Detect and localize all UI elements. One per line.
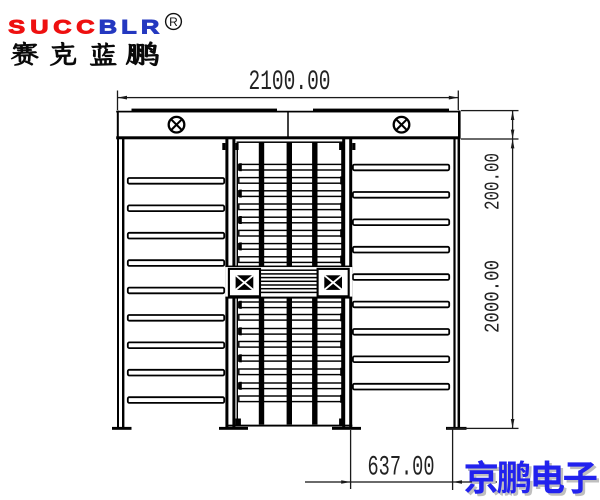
svg-text:R: R — [169, 15, 178, 29]
svg-text:2100.00: 2100.00 — [249, 67, 331, 98]
svg-text:C: C — [53, 17, 71, 38]
svg-text:B: B — [99, 17, 117, 38]
svg-text:2000.00: 2000.00 — [483, 260, 506, 333]
svg-text:637.00: 637.00 — [368, 453, 435, 484]
svg-text:R: R — [141, 17, 159, 38]
svg-text:L: L — [121, 17, 136, 38]
svg-text:S: S — [8, 17, 25, 38]
svg-text:U: U — [30, 17, 48, 38]
svg-text:C: C — [76, 17, 94, 38]
svg-text:200.00: 200.00 — [483, 153, 506, 210]
